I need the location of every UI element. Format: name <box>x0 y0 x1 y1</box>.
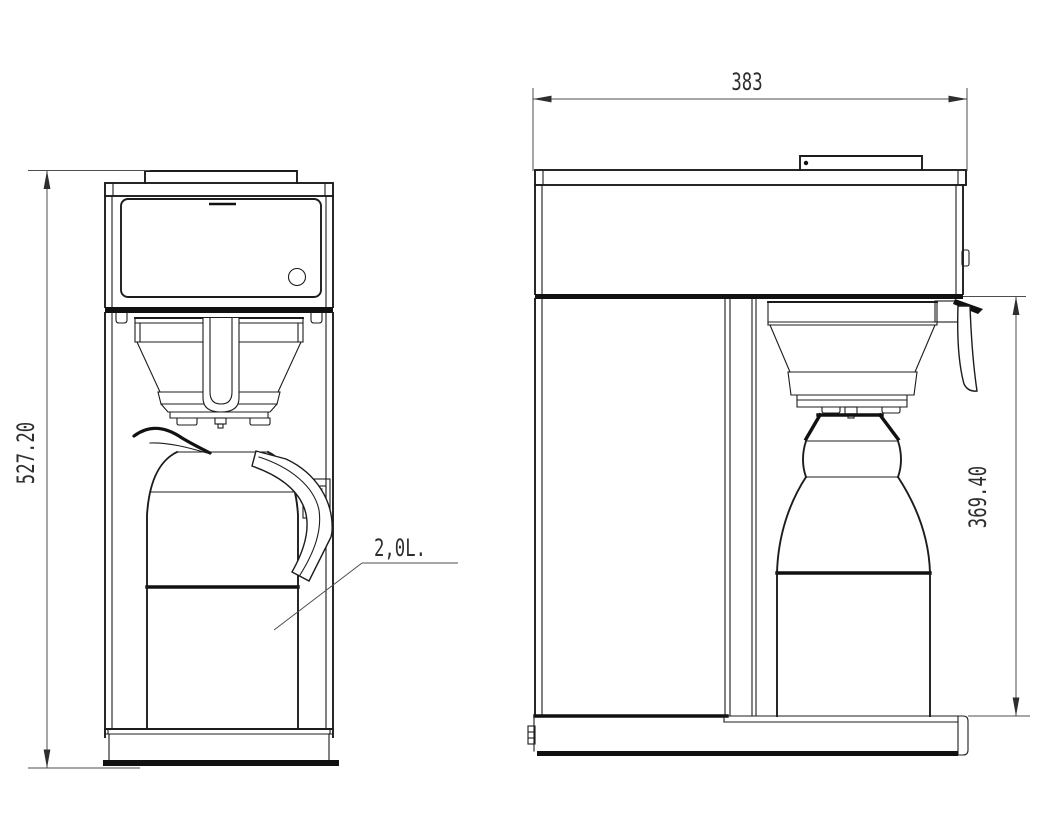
dimension-arrow-right-icon <box>949 96 968 103</box>
front-control-panel <box>121 199 321 297</box>
dimension-arrow-up-icon <box>44 171 51 190</box>
dimension-arrow-down-icon <box>1013 698 1020 717</box>
side-basket-handle[interactable] <box>935 299 983 391</box>
capacity-callout: 2,0L. <box>274 534 458 630</box>
front-view <box>103 171 339 766</box>
front-base <box>103 729 339 766</box>
dimension-arrow-down-icon <box>44 750 51 769</box>
jug-capacity-label: 2,0L. <box>374 534 426 562</box>
lid-hinge-pin <box>804 161 808 165</box>
brew-height-label: 369.40 <box>964 466 992 528</box>
front-jug-handle[interactable] <box>252 451 332 581</box>
side-base <box>528 716 968 756</box>
dimension-arrow-up-icon <box>1013 297 1020 316</box>
dimension-arrow-left-icon <box>533 96 552 103</box>
leader-line <box>274 563 362 630</box>
side-top-band <box>535 170 966 185</box>
drawing-svg: 527.20 383 369.40 2,0L. <box>0 0 1044 840</box>
side-housing <box>535 185 969 716</box>
overall-height-label: 527.20 <box>12 422 40 484</box>
tray-end-cap <box>958 716 968 755</box>
front-top-band <box>105 183 333 196</box>
side-view <box>528 156 983 756</box>
jug-spout <box>134 428 210 453</box>
side-filter-basket <box>768 302 937 418</box>
dimension-overall-height: 527.20 <box>12 171 150 769</box>
side-lid-handle <box>800 156 922 170</box>
depth-label: 383 <box>731 68 762 96</box>
technical-drawing-page: 527.20 383 369.40 2,0L. <box>0 0 1044 840</box>
side-jug <box>777 415 930 716</box>
front-lid-handle <box>145 171 297 183</box>
front-basket-handle[interactable] <box>203 318 239 412</box>
power-button[interactable] <box>289 269 306 286</box>
